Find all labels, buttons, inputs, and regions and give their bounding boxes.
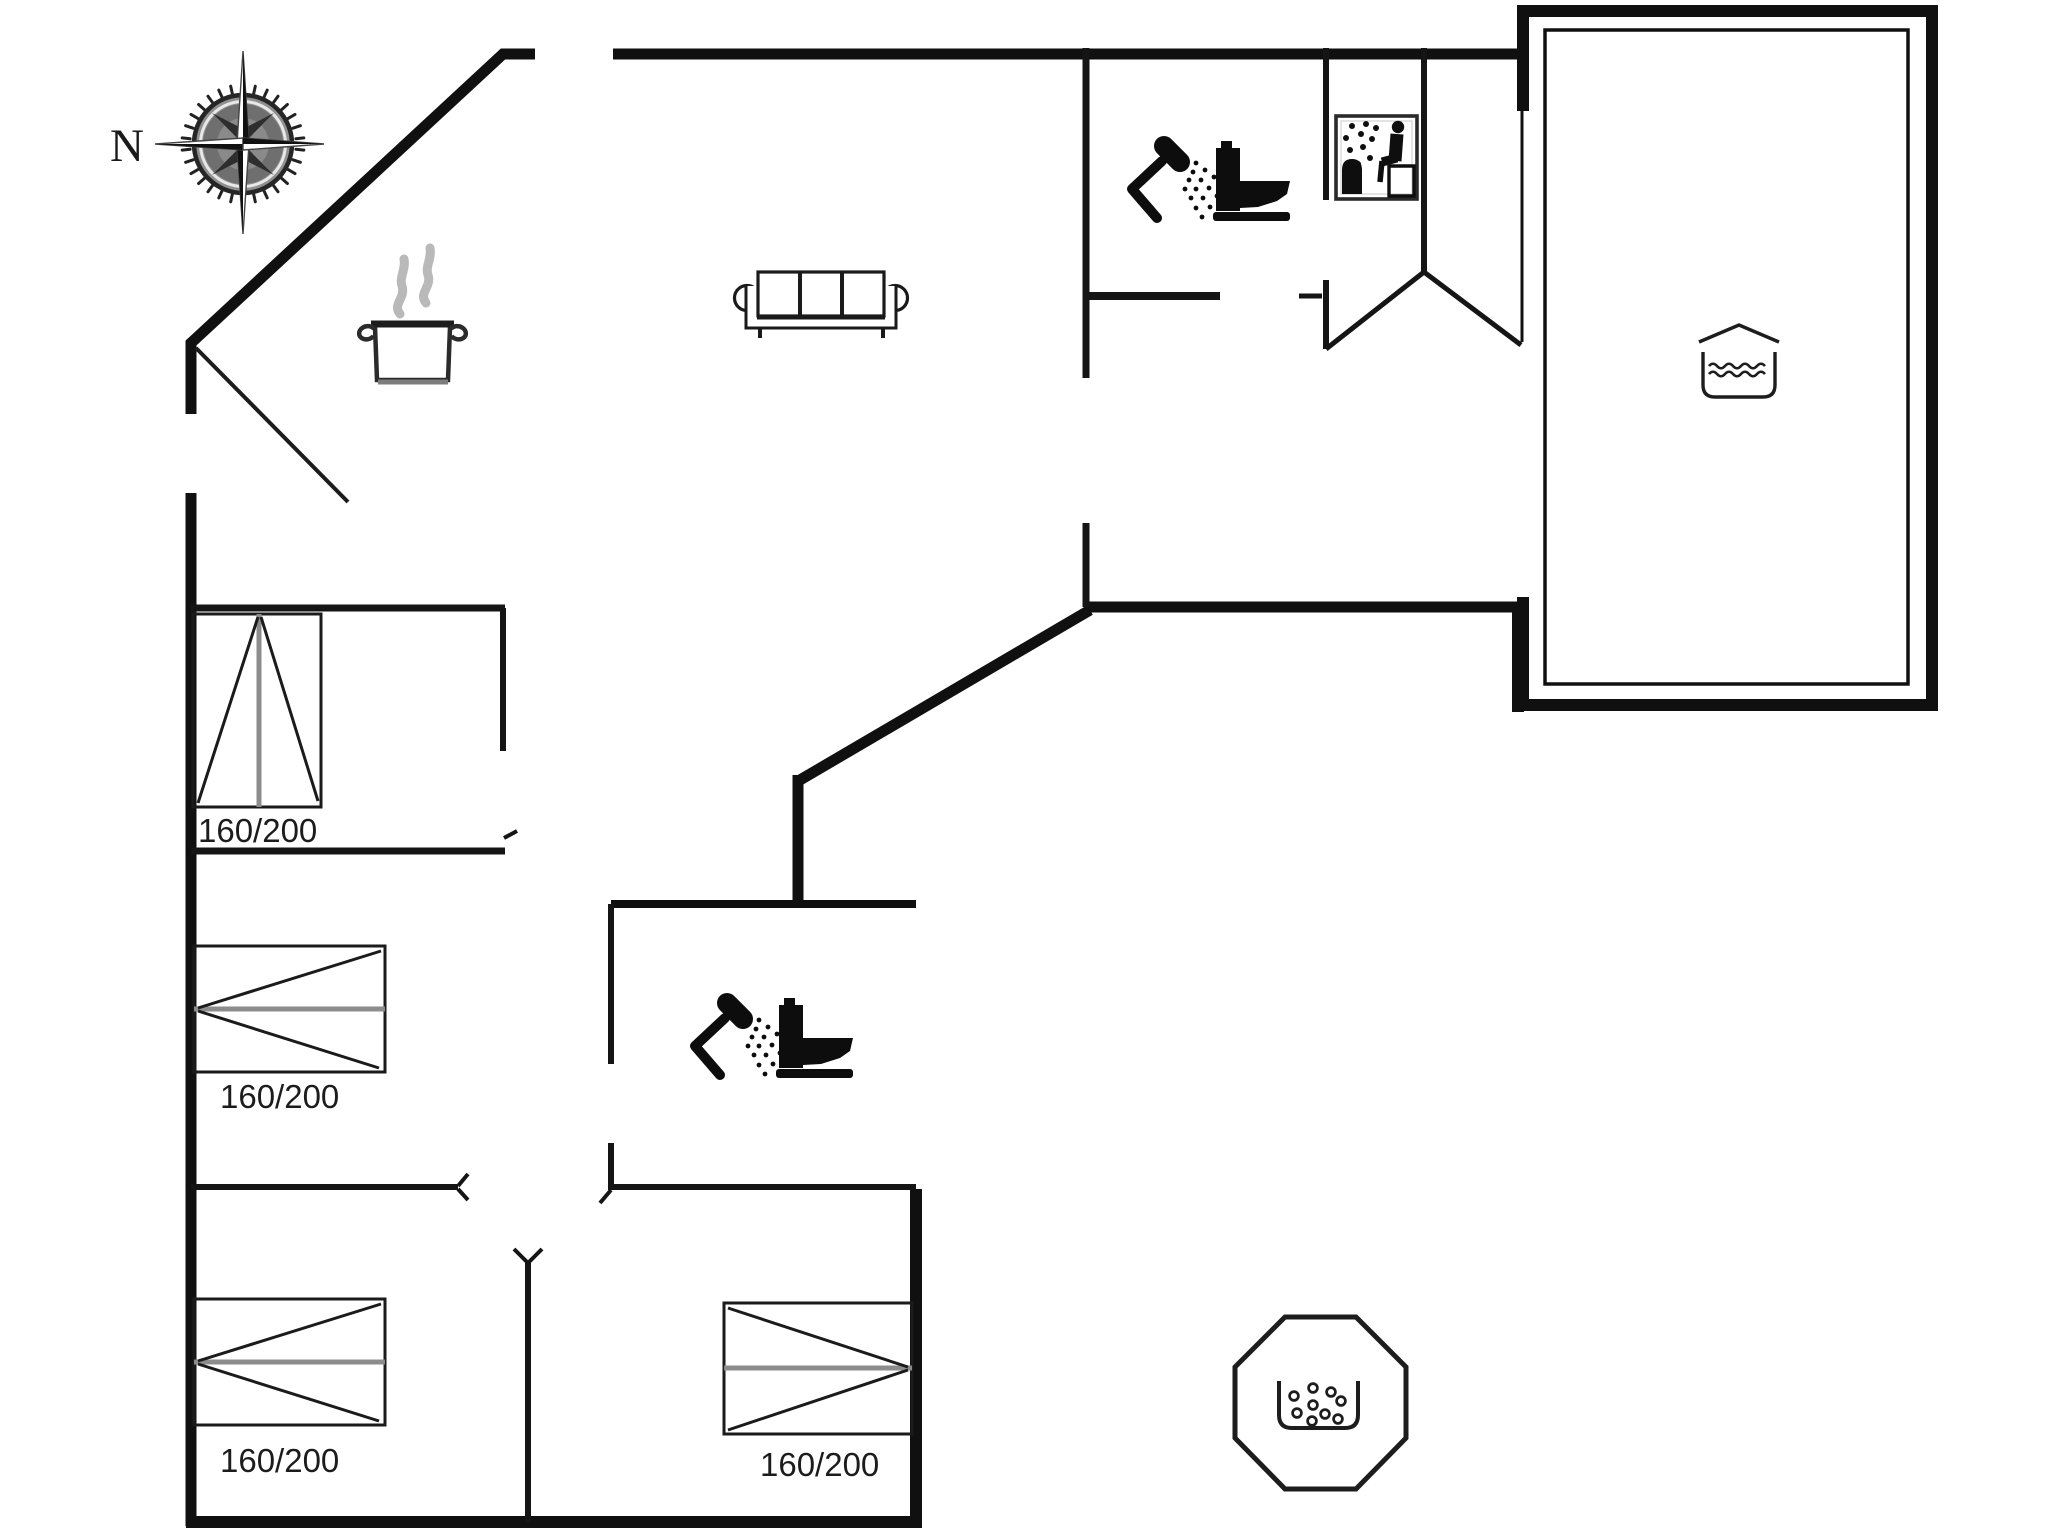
svg-text:160/200: 160/200 (760, 1446, 879, 1483)
svg-text:160/200: 160/200 (220, 1442, 339, 1479)
svg-text:160/200: 160/200 (220, 1078, 339, 1115)
svg-text:160/200: 160/200 (198, 812, 317, 849)
svg-text:N: N (110, 120, 144, 172)
